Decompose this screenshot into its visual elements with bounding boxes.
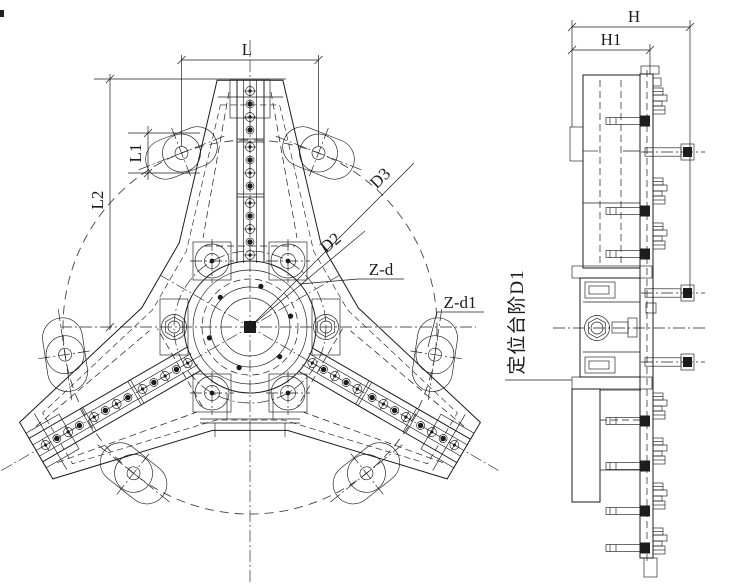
technical-drawing: L L1 L2 D3 D2 Z-d — [0, 0, 730, 585]
dim-label-D3: D3 — [366, 164, 394, 192]
bolt-hole — [266, 239, 310, 283]
dim-label-H: H — [628, 7, 640, 26]
flange-section — [570, 127, 583, 161]
clamp-bolt — [641, 354, 705, 370]
dim-H: H — [568, 7, 694, 290]
bolt-hole — [190, 371, 234, 415]
positioning-step-note: 定位台阶D1 — [505, 269, 572, 380]
arm-lower-left — [0, 171, 400, 576]
callout-label-Zd: Z-d — [369, 260, 394, 279]
front-view: L L1 L2 D3 D2 Z-d — [0, 40, 559, 583]
dim-label-H1: H1 — [601, 30, 622, 49]
clamp-bolt — [641, 285, 705, 301]
spindle-body — [570, 75, 640, 268]
bolt-hole — [266, 371, 310, 415]
hub-section — [580, 278, 640, 377]
clamp-bolt — [641, 144, 705, 160]
dim-label-L: L — [242, 40, 252, 59]
dim-label-L1: L1 — [126, 144, 145, 163]
dim-label-D2: D2 — [316, 229, 344, 257]
callout-Zd1: Z-d1 — [428, 293, 484, 347]
scan-artifact — [0, 10, 4, 17]
lower-flange — [572, 389, 646, 502]
positioning-step-label: 定位台阶D1 — [506, 269, 528, 374]
cad-drawing-page: L L1 L2 D3 D2 Z-d — [0, 0, 730, 585]
bolt-hole — [190, 239, 234, 283]
dim-label-L2: L2 — [88, 191, 107, 210]
hex-bolt — [162, 315, 187, 340]
dim-D2: D2 — [250, 229, 365, 327]
callout-label-Zd1: Z-d1 — [443, 293, 476, 312]
side-view: H H1 定位台阶D1 — [505, 7, 706, 577]
